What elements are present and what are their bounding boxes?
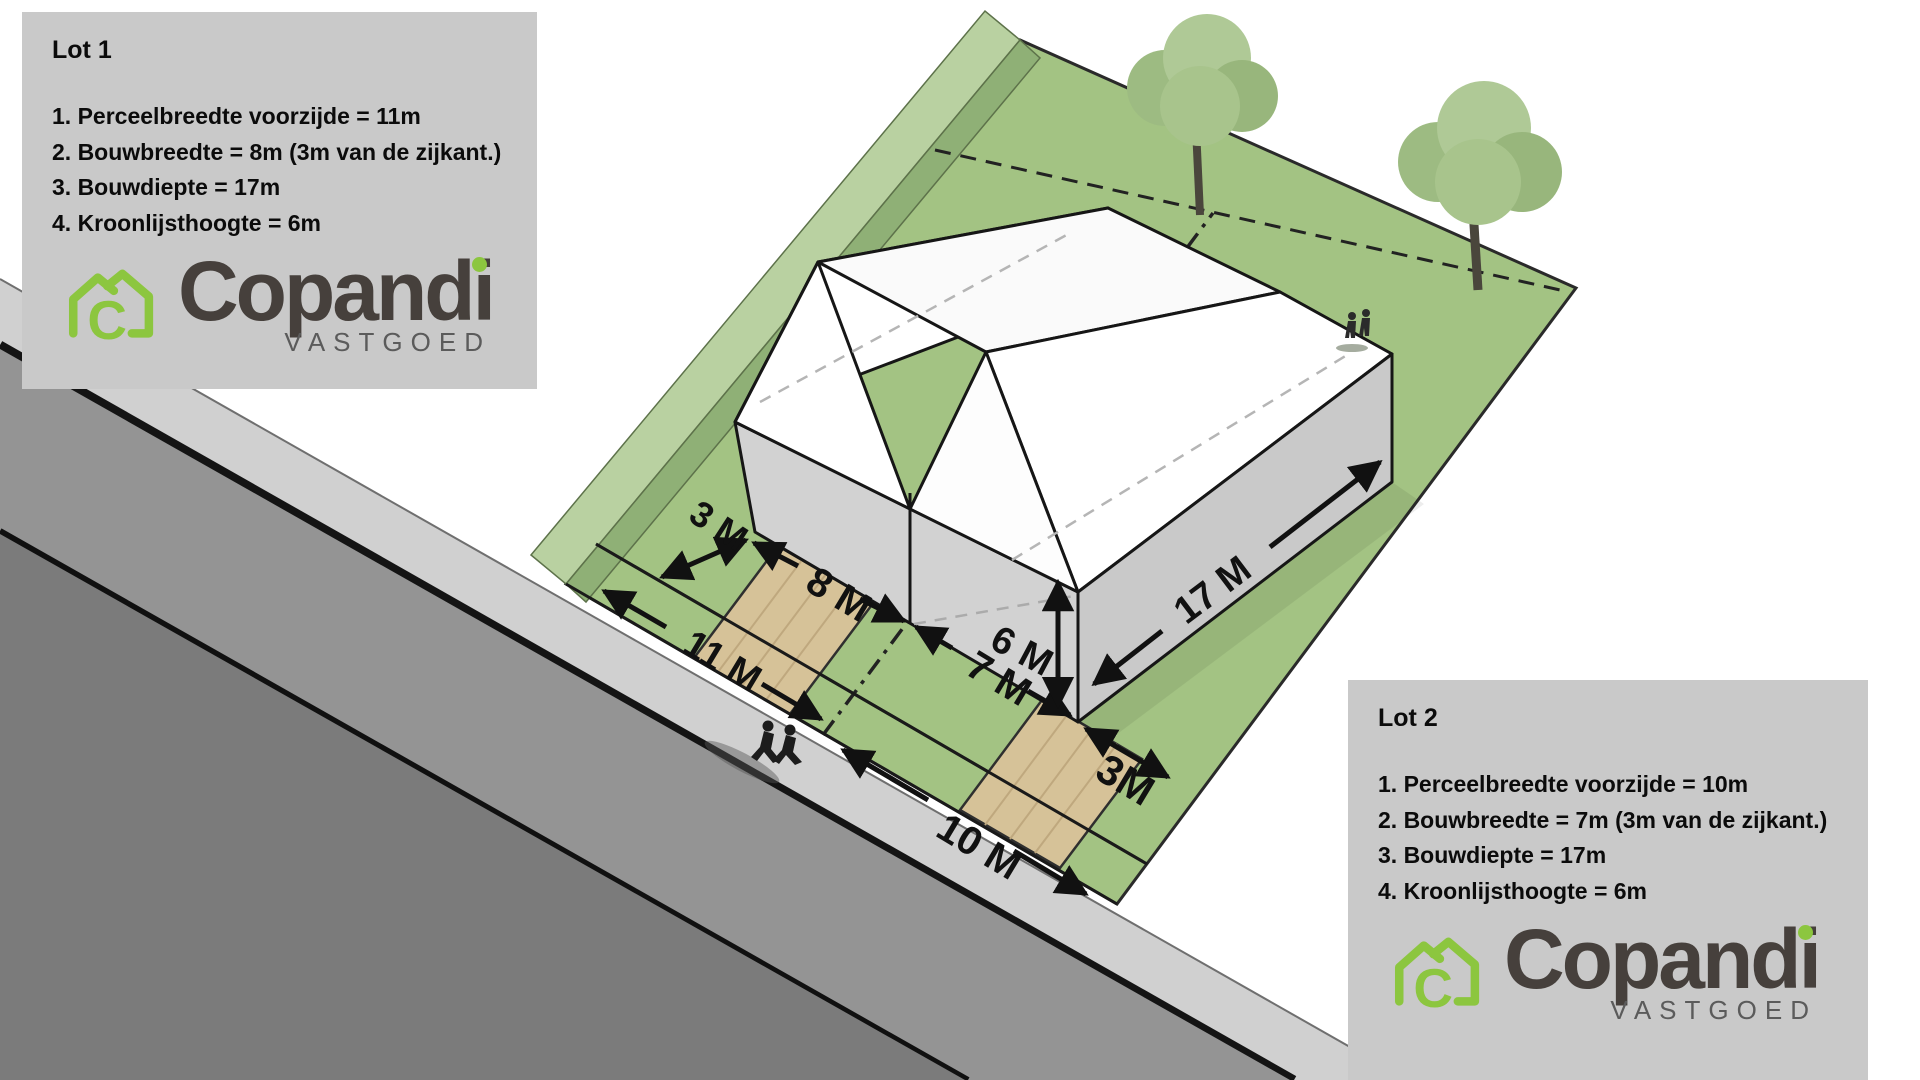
copandi-house-icon-2: C	[1386, 925, 1490, 1021]
brand-name-2: Copandi	[1504, 920, 1819, 1000]
lot2-line-4: 4. Kroonlijsthoogte = 6m	[1378, 874, 1838, 910]
logo-monogram: C	[87, 289, 127, 351]
lot2-line-1: 1. Perceelbreedte voorzijde = 10m	[1378, 767, 1838, 803]
site-plan-page: 3 M 8 M 7 M 6 M 17 M 3M 11 M 10 M Lot 1 …	[0, 0, 1920, 1080]
copandi-logo-2: C Copandi VASTGOED	[1378, 920, 1838, 1027]
logo-monogram-2: C	[1413, 957, 1453, 1019]
lot1-line-4: 4. Kroonlijsthoogte = 6m	[52, 206, 507, 242]
lot2-line-3: 3. Bouwdiepte = 17m	[1378, 838, 1838, 874]
lot1-line-2: 2. Bouwbreedte = 8m (3m van de zijkant.)	[52, 135, 507, 171]
brand-i-dot-2	[1798, 925, 1813, 940]
lot2-info-box: Lot 2 1. Perceelbreedte voorzijde = 10m …	[1348, 680, 1868, 1080]
lot2-title: Lot 2	[1378, 704, 1838, 733]
brand-wordmark: Copandi VASTGOED	[178, 252, 493, 359]
brand-name: Copandi	[178, 252, 493, 332]
copandi-logo: C Copandi VASTGOED	[52, 252, 507, 359]
lot2-line-2: 2. Bouwbreedte = 7m (3m van de zijkant.)	[1378, 803, 1838, 839]
lot1-title: Lot 1	[52, 36, 507, 65]
lot1-info-box: Lot 1 1. Perceelbreedte voorzijde = 11m …	[22, 12, 537, 389]
lot1-line-3: 3. Bouwdiepte = 17m	[52, 170, 507, 206]
brand-i-dot	[472, 257, 487, 272]
copandi-house-icon: C	[60, 257, 164, 353]
brand-wordmark-2: Copandi VASTGOED	[1504, 920, 1819, 1027]
lot1-line-1: 1. Perceelbreedte voorzijde = 11m	[52, 99, 507, 135]
